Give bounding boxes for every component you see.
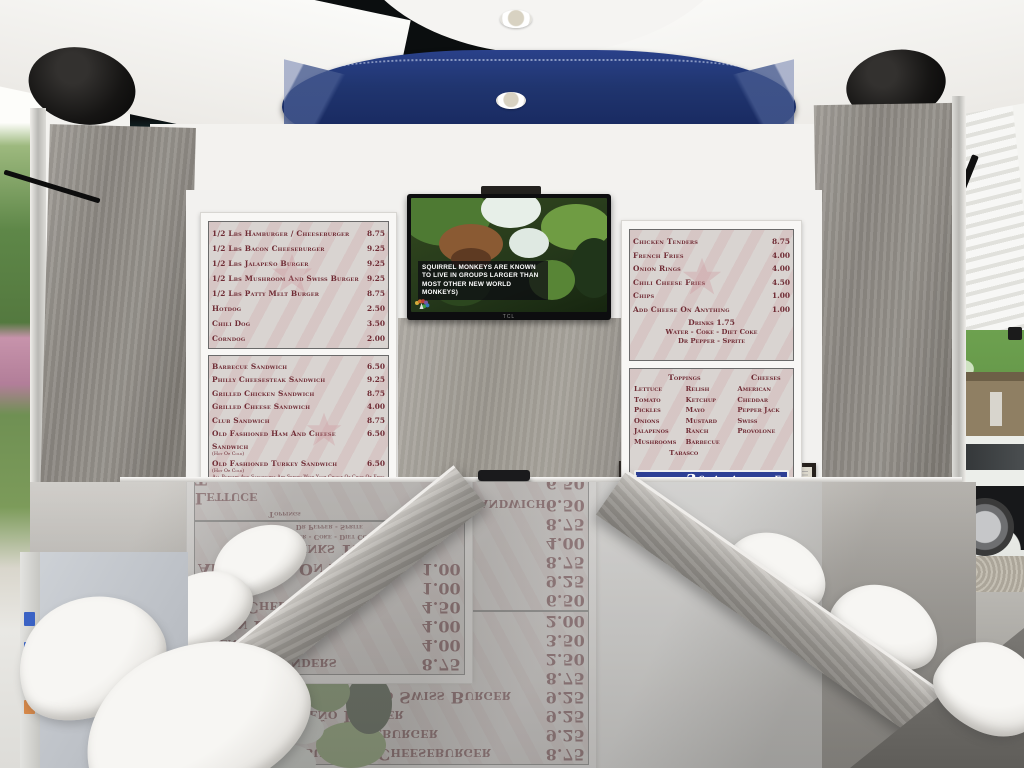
nbc-peacock-icon bbox=[414, 299, 430, 310]
building-door bbox=[990, 392, 1002, 426]
menu-item-price: 8.75 bbox=[546, 515, 585, 534]
topping: Mushrooms bbox=[634, 437, 686, 448]
cheese: Cheddar bbox=[737, 395, 789, 406]
menu-item-name: Club Sandwich bbox=[212, 414, 270, 427]
menu-item-price: 8.75 bbox=[367, 226, 385, 241]
toppings-header: Toppings bbox=[195, 508, 374, 520]
menu-item: Corndog2.00 bbox=[209, 331, 388, 346]
menu-item-price: 3.50 bbox=[367, 316, 385, 331]
drinks-options: Water - Coke - Diet Coke bbox=[630, 328, 793, 338]
menu-item-price: 9.25 bbox=[367, 271, 385, 286]
nature-video-frame: SQUIRREL MONKEYS ARE KNOWN TO LIVE IN GR… bbox=[411, 198, 607, 312]
burgers-menu-board: 1/2 Lbs Hamburger / Cheeseburger8.75 1/2… bbox=[208, 221, 389, 349]
menu-item-price: 9.25 bbox=[546, 688, 585, 707]
menu-item-price: 9.25 bbox=[367, 241, 385, 256]
topping: Relish bbox=[686, 384, 738, 395]
puck-light-icon bbox=[496, 92, 526, 109]
menu-item: Chicken Tenders8.75 bbox=[630, 235, 793, 249]
menu-item-name: 1/2 Lbs Hamburger / Cheeseburger bbox=[212, 226, 349, 241]
menu-item-name: Hotdog bbox=[212, 301, 241, 316]
ceiling-light-icon bbox=[500, 10, 532, 28]
menu-item: Club Sandwich8.75 bbox=[209, 414, 388, 427]
menu-item-name: Corndog bbox=[212, 331, 245, 346]
topping: Lettuce bbox=[634, 384, 686, 395]
menu-item-name: Grilled Chicken Sandwich bbox=[212, 387, 314, 400]
toppings-grid: Lettuce Tomato Pickles Onions Jalapenos … bbox=[630, 384, 793, 448]
menu-item-price: 2.50 bbox=[367, 301, 385, 316]
topping: Mayo bbox=[686, 405, 738, 416]
menu-item-price: 4.00 bbox=[422, 636, 461, 655]
menu-item-name: Onion Rings bbox=[633, 262, 681, 276]
menu-item-price: 9.25 bbox=[546, 707, 585, 726]
menu-item-price: 9.25 bbox=[367, 373, 385, 386]
sides-menu-board: Chicken Tenders8.75 French Fries4.00 Oni… bbox=[629, 229, 794, 361]
topping: Ketchup bbox=[686, 395, 738, 406]
menu-item-name: Chicken Tenders bbox=[633, 235, 698, 249]
menu-item-price: 1.00 bbox=[772, 303, 790, 317]
menu-item-price: 6.50 bbox=[546, 496, 585, 515]
menu-item-name: Chili Dog bbox=[212, 316, 250, 331]
tv-caption: SQUIRREL MONKEYS ARE KNOWN TO LIVE IN GR… bbox=[418, 261, 548, 300]
menu-item-name: Philly Cheesesteak Sandwich bbox=[212, 373, 325, 386]
tv-caption-line: SQUIRREL MONKEYS ARE KNOWN bbox=[422, 264, 544, 272]
sky-patch bbox=[509, 228, 549, 258]
menu-item: Philly Cheesesteak Sandwich9.25 bbox=[209, 373, 388, 386]
menu-item-price: 4.00 bbox=[367, 400, 385, 413]
topping: Pickles bbox=[634, 405, 686, 416]
menu-item-price: 6.50 bbox=[367, 457, 385, 470]
flag-star-icon bbox=[680, 256, 724, 298]
menu-item-name: Chips bbox=[633, 289, 654, 303]
menu-item-name: French Fries bbox=[633, 249, 684, 263]
menu-item: Barbecue Sandwich6.50 bbox=[209, 360, 388, 373]
cheeses-header: Cheeses bbox=[739, 372, 793, 384]
menu-item-price: 3.50 bbox=[546, 631, 585, 650]
menu-item-price: 8.75 bbox=[546, 553, 585, 572]
toppings-header: Toppings bbox=[630, 372, 739, 384]
menu-item-price: 6.50 bbox=[546, 482, 585, 493]
rivet-row bbox=[322, 59, 756, 89]
menu-item-price: 2.00 bbox=[367, 331, 385, 346]
menu-item: Grilled Cheese Sandwich4.00 bbox=[209, 400, 388, 413]
menu-item-price: 2.50 bbox=[546, 650, 585, 669]
topping: Barbecue bbox=[686, 437, 738, 448]
drinks-title: Drinks 1.75 bbox=[630, 317, 793, 328]
menu-item-price: 1.00 bbox=[772, 289, 790, 303]
menu-item-price: 1.00 bbox=[422, 560, 461, 579]
tv-screen: SQUIRREL MONKEYS ARE KNOWN TO LIVE IN GR… bbox=[407, 194, 611, 320]
menu-item-price: 4.50 bbox=[422, 598, 461, 617]
cheese: Pepper Jack bbox=[737, 405, 789, 416]
menu-item-price: 8.75 bbox=[367, 414, 385, 427]
tv-brand-label: TCL bbox=[407, 314, 611, 321]
tv-caption-line: MOST OTHER NEW WORLD MONKEYS) bbox=[422, 281, 544, 297]
menu-item-price: 6.50 bbox=[546, 591, 585, 610]
menu-wall: 1/2 Lbs Hamburger / Cheeseburger8.75 1/2… bbox=[186, 190, 822, 482]
menu-item-price: 9.25 bbox=[367, 256, 385, 271]
menu-item-name: Barbecue Sandwich bbox=[212, 360, 287, 373]
menu-item: Grilled Chicken Sandwich8.75 bbox=[209, 387, 388, 400]
menu-item-price: 6.50 bbox=[367, 427, 385, 440]
menu-item-price: 8.75 bbox=[422, 655, 461, 674]
flag-star-icon bbox=[304, 411, 344, 449]
menu-board-right: Chicken Tenders8.75 French Fries4.00 Oni… bbox=[621, 220, 802, 504]
menu-item-name: Add Cheese On Anything bbox=[633, 303, 730, 317]
menu-item-price: 4.50 bbox=[772, 276, 790, 290]
menu-item-price: 8.75 bbox=[367, 286, 385, 301]
toppings-column-2: Relish Ketchup Mayo Mustard Ranch Barbec… bbox=[686, 384, 738, 448]
foliage-dark bbox=[571, 238, 607, 298]
topping: Mustard bbox=[686, 416, 738, 427]
menu-item-price: 9.25 bbox=[546, 726, 585, 745]
tv-remote bbox=[478, 470, 530, 481]
food-trailer-interior-photo: 1/2 Lbs Hamburger / Cheeseburger8.75 1/2… bbox=[0, 0, 1024, 768]
hinge-sticker bbox=[24, 612, 35, 626]
topping: Ranch bbox=[686, 426, 738, 437]
toppings-column-1: Lettuce Tomato Pickles Onions Jalapenos … bbox=[634, 384, 686, 448]
sandwiches-menu-board: Barbecue Sandwich6.50 Philly Cheesesteak… bbox=[208, 355, 389, 481]
menu-item: Hotdog2.50 bbox=[209, 301, 388, 316]
topping: Jalapenos bbox=[634, 426, 686, 437]
menu-item-price: 4.00 bbox=[546, 534, 585, 553]
menu-item-price: 4.00 bbox=[772, 262, 790, 276]
menu-item-price: 8.75 bbox=[367, 387, 385, 400]
cheese: American bbox=[737, 384, 789, 395]
menu-item-price: 4.00 bbox=[422, 617, 461, 636]
tv-caption-line: TO LIVE IN GROUPS LARGER THAN bbox=[422, 272, 544, 280]
menu-item: Chili Dog3.50 bbox=[209, 316, 388, 331]
menu-board-left: 1/2 Lbs Hamburger / Cheeseburger8.75 1/2… bbox=[200, 212, 397, 500]
menu-item-price: 4.00 bbox=[772, 249, 790, 263]
menu-item-price: 8.75 bbox=[546, 745, 585, 764]
drinks-options: Dr Pepper - Sprite bbox=[630, 337, 793, 347]
topping: Onions bbox=[634, 416, 686, 427]
menu-item: Old Fashioned Ham And Cheese Sandwich6.5… bbox=[209, 427, 388, 454]
topping: Tabasco bbox=[630, 448, 738, 459]
menu-item-price: 1.00 bbox=[422, 579, 461, 598]
cheese: Provolone bbox=[737, 426, 789, 437]
menu-item-name: Grilled Cheese Sandwich bbox=[212, 400, 310, 413]
thermostat-switch bbox=[1008, 327, 1022, 340]
menu-item: 1/2 Lbs Hamburger / Cheeseburger8.75 bbox=[209, 226, 388, 241]
cheeses-column: American Cheddar Pepper Jack Swiss Provo… bbox=[737, 384, 789, 448]
flag-star-icon bbox=[269, 252, 315, 296]
cheese: Swiss bbox=[737, 416, 789, 427]
menu-item-price: 8.75 bbox=[772, 235, 790, 249]
menu-item: Add Cheese On Anything1.00 bbox=[630, 303, 793, 317]
center-steel-wall: NLR bbox=[398, 318, 622, 482]
topping: Tomato bbox=[634, 395, 686, 406]
menu-item-price: 9.25 bbox=[546, 572, 585, 591]
menu-item-price: 6.50 bbox=[367, 360, 385, 373]
menu-item-price: 8.75 bbox=[546, 669, 585, 688]
menu-item-price: 2.00 bbox=[546, 612, 585, 631]
sky-patch bbox=[481, 198, 541, 228]
